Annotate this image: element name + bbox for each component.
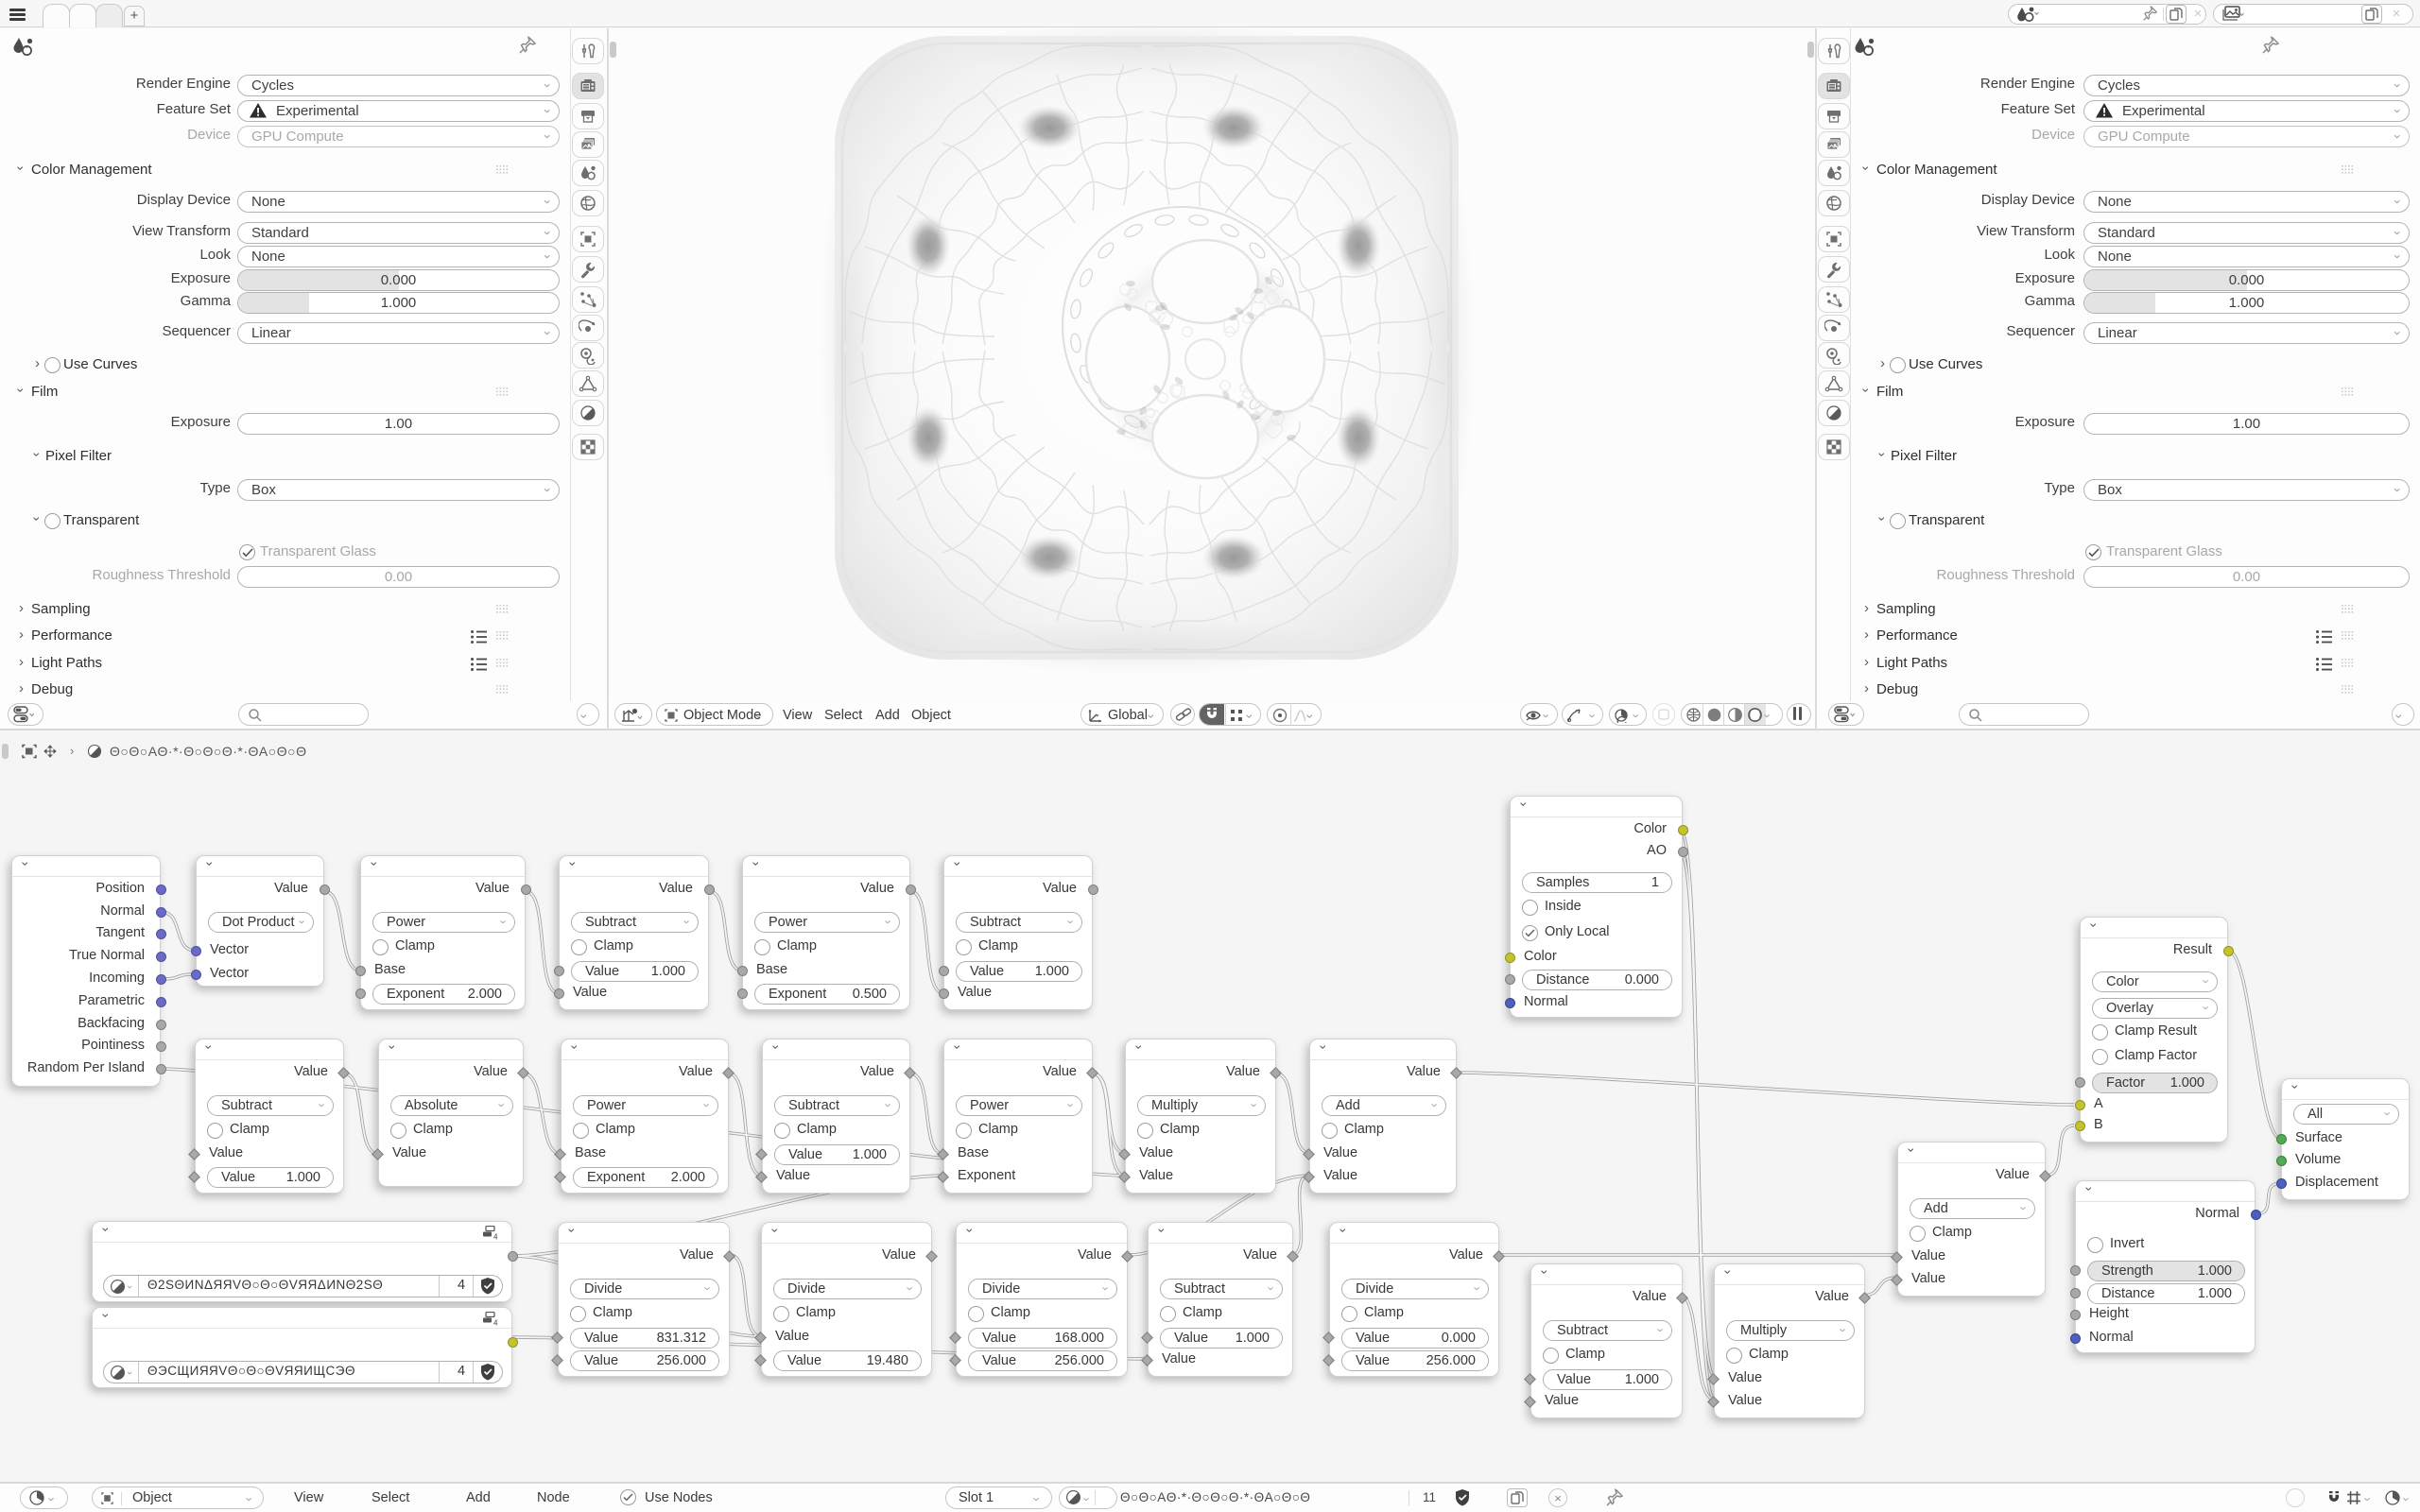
svg-text:4: 4 [493, 1319, 498, 1327]
svg-text:4: 4 [493, 1233, 498, 1241]
